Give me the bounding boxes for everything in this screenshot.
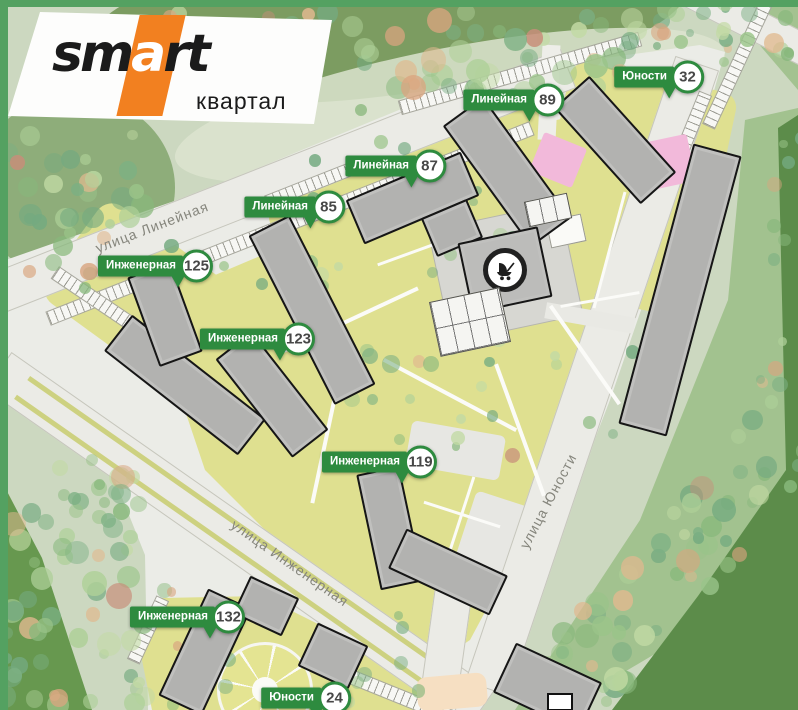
map-canvas: улица Линейнаяулица Инженернаяулица Юнос…: [0, 0, 798, 710]
building-inzhenernaya-119-south: [388, 528, 508, 615]
building-yunosti-24: [297, 622, 368, 689]
logo-subtitle: квартал: [196, 88, 287, 115]
map-pin[interactable]: Юности24: [261, 682, 351, 710]
frame-left: [0, 0, 8, 710]
pin-number-badge: 119: [404, 446, 437, 479]
garage-row: [429, 287, 511, 357]
map-pin[interactable]: Инженерная132: [130, 601, 245, 634]
map-pin[interactable]: Юности32: [614, 61, 704, 94]
logo: smart квартал: [0, 0, 345, 135]
kindergarten-badge: [483, 248, 527, 292]
small-white-building: [547, 693, 573, 710]
map-pin[interactable]: Инженерная125: [98, 250, 213, 283]
stroller-icon: [494, 259, 516, 281]
pin-number-badge: 87: [413, 150, 446, 183]
frame-top: [0, 0, 798, 7]
pin-number-badge: 125: [180, 250, 213, 283]
pin-number-badge: 132: [212, 601, 245, 634]
map-pin[interactable]: Инженерная123: [200, 323, 315, 356]
pin-number-badge: 89: [531, 84, 564, 117]
map-pin[interactable]: Линейная89: [463, 84, 564, 117]
pin-number-badge: 32: [671, 61, 704, 94]
logo-brand-prefix: sm: [52, 24, 131, 84]
logo-brand-accent: a: [131, 24, 163, 84]
map-pin[interactable]: Линейная87: [345, 150, 446, 183]
pin-number-badge: 85: [312, 191, 345, 224]
logo-brand-suffix: rt: [163, 24, 208, 84]
map-pin[interactable]: Линейная85: [244, 191, 345, 224]
pin-number-badge: 24: [318, 682, 351, 710]
logo-brand: smart: [52, 28, 208, 80]
pin-number-badge: 123: [282, 323, 315, 356]
building-yunosti-32-north: [554, 76, 677, 205]
map-pin[interactable]: Инженерная119: [322, 446, 437, 479]
